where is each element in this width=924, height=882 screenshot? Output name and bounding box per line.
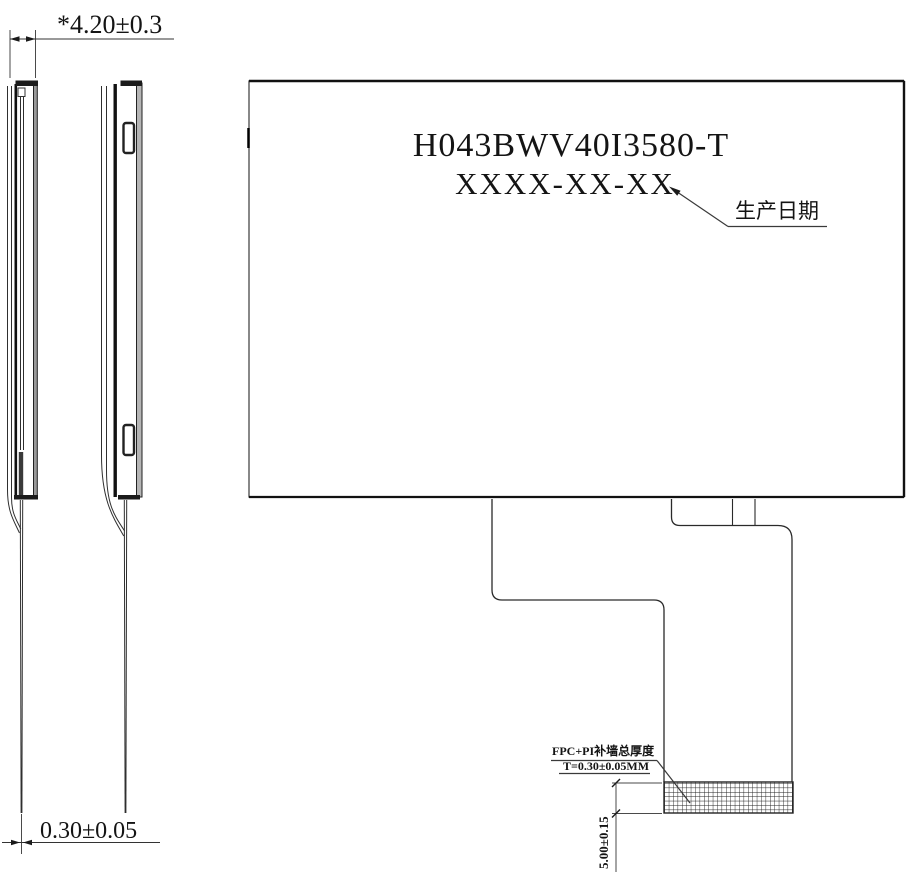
mechanical-drawing-canvas: *4.20±0.3 H043BWV40I3580-T XXXX-XX-XX 生产… (0, 0, 924, 882)
dim-arrow-in-right (11, 840, 20, 845)
side-view-left (8, 81, 39, 814)
side2-tab-lower (124, 425, 135, 455)
date-placeholder-text: XXXX-XX-XX (285, 167, 845, 201)
side-view-right (102, 81, 143, 814)
side1-fpc-tail (20, 500, 21, 813)
side2-tab-upper (124, 123, 135, 153)
side1-top-cap (16, 81, 39, 87)
dim-stiffener-height-text: 5.00±0.15 (597, 816, 611, 869)
side1-top-notch (18, 88, 25, 97)
part-number-text: H043BWV40I3580-T (291, 127, 851, 164)
dim-stiffener-height-lines (612, 779, 662, 872)
fpc-note-line1: FPC+PI补墙总厚度 (552, 745, 654, 758)
production-date-label: 生产日期 (735, 200, 819, 223)
dim-fpc-thickness-text: 0.30±0.05 (40, 818, 137, 844)
side1-bottom-strip (19, 452, 23, 497)
dim-arrow-right (26, 36, 36, 41)
side2-fpc-tail (124, 500, 125, 813)
dim-arrow-left (10, 36, 20, 41)
fpc-note-line2: T=0.30±0.05MM (563, 760, 649, 773)
side2-top-cap (121, 81, 143, 87)
side1-bottom-bar (14, 495, 38, 500)
fpc-outline (492, 499, 792, 782)
dim-total-thickness-text: *4.20±0.3 (57, 11, 162, 40)
dim-arrow-in-left (23, 840, 32, 845)
fpc-stiffener-hatch (664, 782, 793, 813)
side2-bottom-bar (118, 495, 140, 500)
